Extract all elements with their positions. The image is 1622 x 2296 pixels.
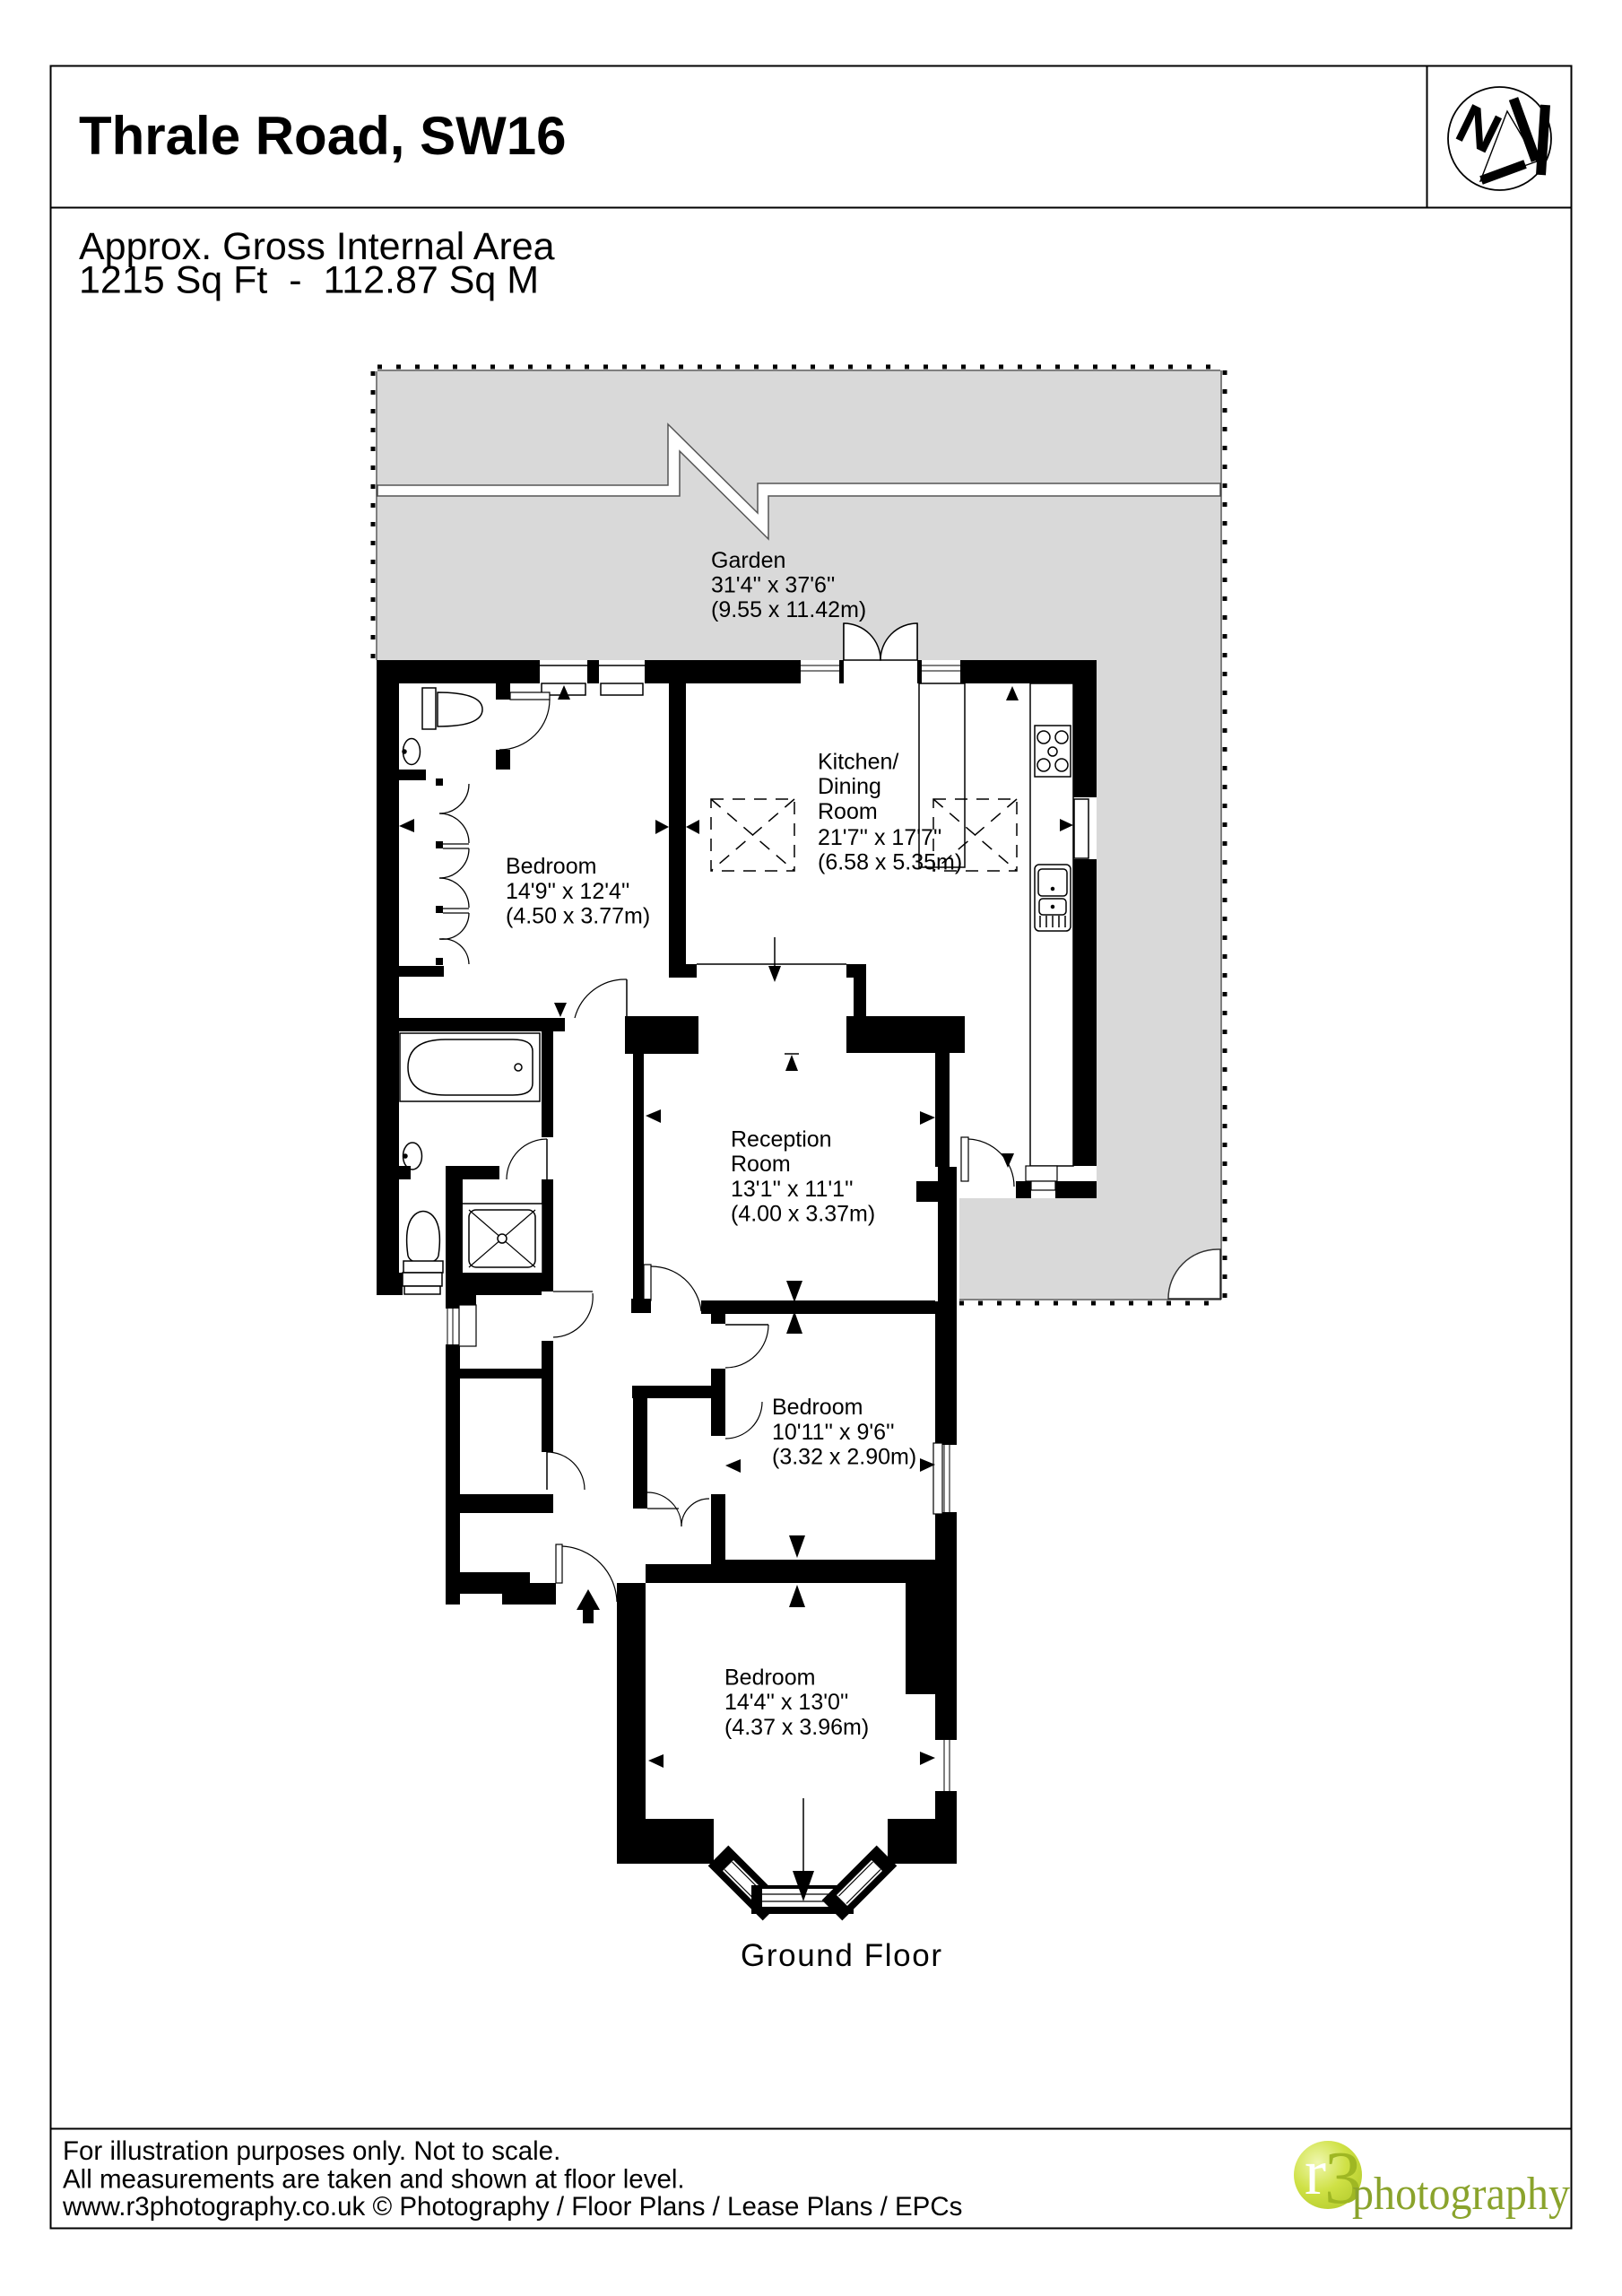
- svg-text:31'4'' x 37'6'': 31'4'' x 37'6'': [711, 573, 835, 598]
- svg-text:Bedroom: Bedroom: [506, 854, 596, 879]
- svg-text:(4.50 x 3.77m): (4.50 x 3.77m): [506, 904, 650, 929]
- svg-text:(6.58 x 5.35m): (6.58 x 5.35m): [818, 850, 962, 875]
- svg-text:14'4'' x 13'0'': 14'4'' x 13'0'': [724, 1690, 848, 1715]
- svg-text:Room: Room: [818, 799, 878, 824]
- svg-text:1215 Sq Ft - 112.87 Sq M: 1215 Sq Ft - 112.87 Sq M: [79, 259, 539, 302]
- svg-text:Kitchen/: Kitchen/: [818, 750, 898, 775]
- svg-text:Thrale Road, SW16: Thrale Road, SW16: [79, 106, 566, 166]
- svg-text:(4.37 x 3.96m): (4.37 x 3.96m): [724, 1715, 869, 1740]
- svg-text:Bedroom: Bedroom: [724, 1665, 815, 1691]
- svg-text:For illustration purposes only: For illustration purposes only. Not to s…: [63, 2136, 560, 2166]
- svg-text:www.r3photography.co.uk © Phot: www.r3photography.co.uk © Photography / …: [62, 2192, 962, 2222]
- svg-text:Dining: Dining: [818, 774, 881, 799]
- svg-text:(4.00 x 3.37m): (4.00 x 3.37m): [731, 1202, 875, 1227]
- svg-text:r: r: [1305, 2136, 1326, 2208]
- svg-text:21'7'' x 17'7'': 21'7'' x 17'7'': [818, 825, 941, 850]
- svg-text:All measurements are taken and: All measurements are taken and shown at …: [63, 2165, 685, 2195]
- svg-text:Ground Floor: Ground Floor: [741, 1938, 941, 1973]
- svg-text:Room: Room: [731, 1152, 791, 1177]
- svg-text:Garden: Garden: [711, 548, 785, 573]
- svg-text:(3.32 x 2.90m): (3.32 x 2.90m): [772, 1445, 916, 1470]
- svg-text:Reception: Reception: [731, 1127, 832, 1152]
- svg-text:14'9'' x 12'4'': 14'9'' x 12'4'': [506, 879, 629, 904]
- svg-text:(9.55 x 11.42m): (9.55 x 11.42m): [711, 597, 866, 622]
- svg-text:10'11'' x 9'6'': 10'11'' x 9'6'': [772, 1420, 895, 1445]
- svg-text:photography: photography: [1352, 2169, 1570, 2220]
- svg-text:13'1'' x 11'1'': 13'1'' x 11'1'': [731, 1177, 854, 1202]
- svg-text:Bedroom: Bedroom: [772, 1395, 863, 1420]
